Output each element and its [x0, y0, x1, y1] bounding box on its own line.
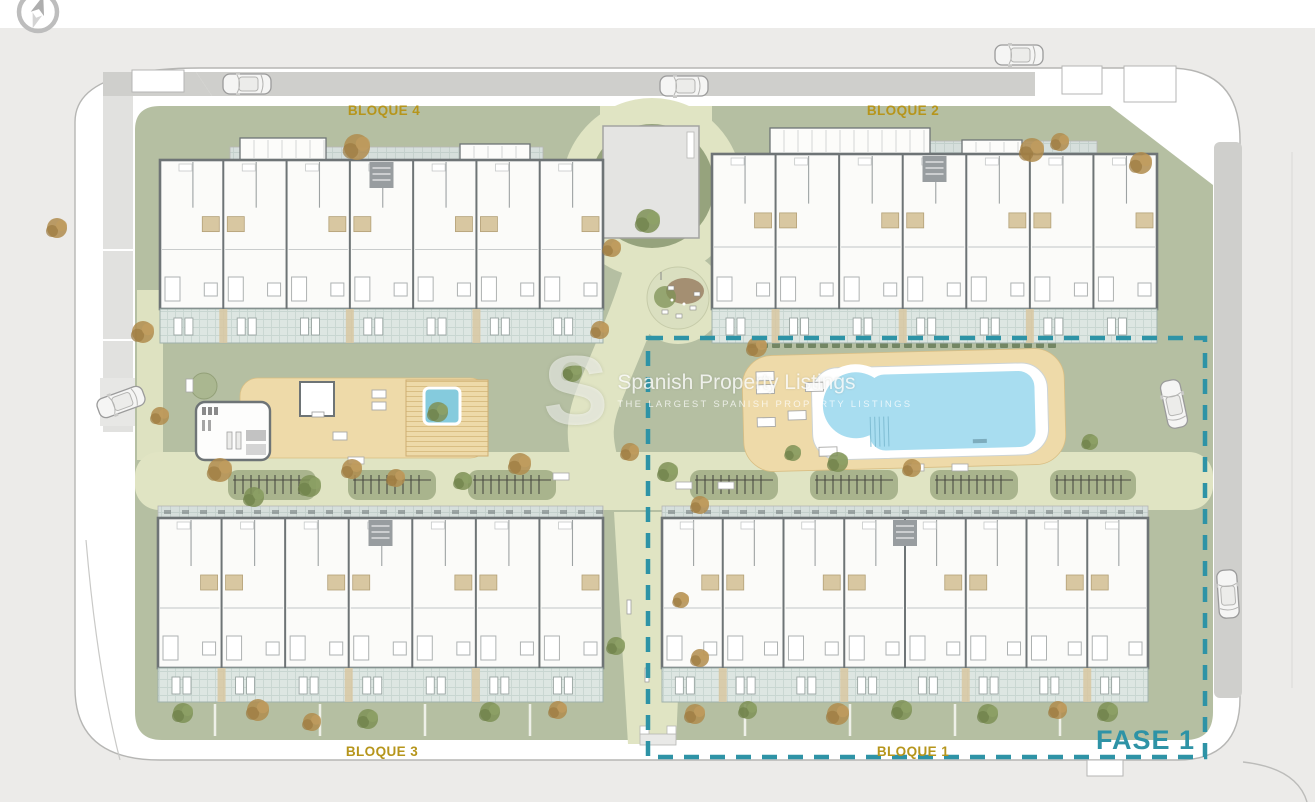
car	[995, 43, 1043, 67]
furniture	[971, 636, 986, 660]
furniture	[795, 158, 808, 165]
sun-lounger	[726, 318, 734, 335]
sun-lounger	[490, 318, 498, 335]
furniture	[789, 636, 804, 660]
gym-equipment	[208, 407, 212, 415]
furniture	[457, 642, 470, 655]
sun-lounger	[756, 384, 774, 393]
playground	[647, 267, 709, 329]
furniture	[802, 522, 815, 529]
furniture	[432, 164, 445, 171]
furniture	[584, 642, 597, 655]
sun-lounger	[1055, 318, 1063, 335]
furniture	[163, 636, 178, 660]
site-plan-page: BLOQUE 4 BLOQUE 2 BLOQUE 3 BLOQUE 1 FASE…	[0, 0, 1315, 802]
bathroom	[329, 217, 346, 232]
sun-lounger	[1101, 677, 1109, 694]
bathroom	[455, 217, 472, 232]
furniture	[757, 283, 770, 296]
compass-needle	[26, 0, 50, 30]
sun-lounger	[686, 677, 694, 694]
sun-lounger	[372, 402, 386, 410]
sun-lounger	[501, 677, 509, 694]
furniture	[884, 283, 897, 296]
entrance-steps	[640, 734, 676, 745]
play-equipment	[662, 310, 668, 314]
sun-lounger	[805, 382, 823, 391]
furniture	[241, 522, 254, 529]
furniture	[1011, 283, 1024, 296]
furniture	[418, 277, 433, 301]
furniture	[544, 636, 559, 660]
car	[660, 74, 708, 98]
car	[223, 72, 271, 96]
sun-lounger	[183, 677, 191, 694]
furniture	[495, 522, 508, 529]
sun-lounger	[554, 318, 562, 335]
furniture	[165, 277, 180, 301]
play-equipment	[694, 292, 700, 296]
furniture	[971, 277, 986, 301]
furniture	[849, 636, 864, 660]
sun-lounger	[929, 677, 937, 694]
bathroom	[755, 213, 772, 228]
furniture	[481, 636, 496, 660]
bathroom	[202, 217, 219, 232]
sun-lounger	[747, 677, 755, 694]
sun-lounger	[917, 318, 925, 335]
sun-lounger	[869, 677, 877, 694]
sun-lounger	[980, 318, 988, 335]
sun-lounger	[426, 677, 434, 694]
furniture	[331, 283, 344, 296]
label-bloque-2: BLOQUE 2	[833, 103, 973, 118]
gym-equipment	[202, 407, 206, 415]
furniture	[1092, 636, 1107, 660]
furniture	[667, 636, 682, 660]
apartment-building-bloque3	[158, 506, 603, 702]
furniture	[886, 642, 899, 655]
bench	[627, 600, 631, 614]
sun-lounger	[565, 318, 573, 335]
sun-lounger	[372, 390, 386, 398]
furniture	[394, 283, 407, 296]
stair-core	[370, 162, 394, 188]
sun-lounger	[757, 417, 775, 426]
sun-lounger	[801, 318, 809, 335]
furniture	[1008, 642, 1021, 655]
stair-core	[923, 156, 947, 182]
gym-equipment	[214, 407, 218, 415]
sun-lounger	[858, 677, 866, 694]
bathroom	[582, 575, 599, 590]
sun-lounger	[174, 318, 182, 335]
bathroom	[227, 217, 244, 232]
sun-lounger	[797, 677, 805, 694]
mound	[810, 470, 898, 500]
sun-lounger	[979, 677, 987, 694]
label-bloque-3: BLOQUE 3	[312, 744, 452, 759]
sun-lounger	[333, 432, 347, 440]
sun-lounger	[437, 677, 445, 694]
furniture	[355, 277, 370, 301]
furniture	[481, 277, 496, 301]
furniture	[717, 277, 732, 301]
sun-lounger	[790, 318, 798, 335]
gym-equipment	[227, 432, 232, 449]
bathroom	[702, 575, 719, 590]
swimming-pool	[868, 371, 1036, 451]
sun-lounger	[1040, 677, 1048, 694]
bathroom	[354, 217, 371, 232]
bathroom	[226, 575, 243, 590]
bathroom	[201, 575, 218, 590]
mound	[468, 470, 556, 500]
furniture	[306, 164, 319, 171]
furniture	[825, 642, 838, 655]
sun-lounger	[172, 677, 180, 694]
bathroom	[823, 575, 840, 590]
sun-lounger	[737, 318, 745, 335]
furniture	[1113, 158, 1126, 165]
furniture	[1129, 642, 1142, 655]
bathroom	[945, 575, 962, 590]
sun-lounger	[1044, 318, 1052, 335]
sun-lounger	[990, 677, 998, 694]
furniture	[292, 277, 307, 301]
bathroom	[455, 575, 472, 590]
sun-lounger	[788, 411, 806, 420]
furniture	[1068, 642, 1081, 655]
furniture	[858, 158, 871, 165]
road-top	[196, 72, 1035, 96]
bathroom	[848, 575, 865, 590]
gym-equipment	[246, 430, 266, 441]
sun-lounger	[300, 318, 308, 335]
furniture	[1098, 277, 1113, 301]
furniture	[1032, 636, 1047, 660]
furniture	[417, 636, 432, 660]
apartment-building-bloque4	[160, 138, 603, 343]
furniture	[1045, 522, 1058, 529]
sun-lounger	[438, 318, 446, 335]
sun-lounger	[247, 677, 255, 694]
furniture	[1049, 158, 1062, 165]
mound	[930, 470, 1018, 500]
sun-lounger	[736, 677, 744, 694]
sun-lounger	[364, 318, 372, 335]
bathroom	[480, 217, 497, 232]
compass-icon-svg	[11, 0, 65, 41]
parking-bay	[1087, 760, 1123, 776]
bathroom	[353, 575, 370, 590]
bathroom	[780, 213, 797, 228]
furniture	[765, 642, 778, 655]
furniture	[227, 636, 242, 660]
furniture	[1105, 522, 1118, 529]
furniture	[266, 642, 279, 655]
furniture	[680, 522, 693, 529]
furniture	[862, 522, 875, 529]
sun-lounger	[299, 677, 307, 694]
bathroom	[882, 213, 899, 228]
furniture	[844, 277, 859, 301]
bathroom	[1091, 575, 1108, 590]
furniture	[559, 164, 572, 171]
bathroom	[582, 217, 599, 232]
sun-lounger	[1107, 318, 1115, 335]
terrace-strip	[662, 668, 1148, 702]
furniture	[947, 642, 960, 655]
furniture	[431, 522, 444, 529]
site-plan-drawing	[0, 0, 1315, 802]
bathroom	[970, 575, 987, 590]
bathroom	[1066, 575, 1083, 590]
sun-lounger	[363, 677, 371, 694]
sun-lounger	[553, 677, 561, 694]
bathroom	[480, 575, 497, 590]
label-bloque-1: BLOQUE 1	[843, 744, 983, 759]
sun-lounger	[375, 318, 383, 335]
sun-lounger	[427, 318, 435, 335]
play-equipment	[668, 286, 674, 290]
furniture	[457, 283, 470, 296]
bathroom	[1034, 213, 1051, 228]
mound	[1050, 470, 1136, 500]
furniture	[923, 522, 936, 529]
sun-lounger	[952, 464, 968, 471]
furniture	[354, 636, 369, 660]
sun-lounger	[718, 482, 734, 489]
sun-lounger	[185, 318, 193, 335]
apartment-building-bloque2	[712, 128, 1157, 343]
furniture	[393, 642, 406, 655]
bathroom	[1009, 213, 1026, 228]
furniture	[908, 277, 923, 301]
furniture	[228, 277, 243, 301]
bathroom	[328, 575, 345, 590]
furniture	[559, 522, 572, 529]
furniture	[179, 164, 192, 171]
furniture	[728, 636, 743, 660]
parking-bay	[1124, 66, 1176, 102]
stair-core	[893, 520, 917, 546]
bathroom	[1136, 213, 1153, 228]
furniture	[820, 283, 833, 296]
furniture	[290, 636, 305, 660]
stair-core	[369, 520, 393, 546]
parking-bay	[1062, 66, 1102, 94]
gym-equipment	[208, 420, 211, 431]
label-fase-1: FASE 1	[1040, 725, 1195, 756]
furniture	[584, 283, 597, 296]
bathroom	[907, 213, 924, 228]
sun-lounger	[928, 318, 936, 335]
sun-lounger	[1051, 677, 1059, 694]
furniture	[947, 283, 960, 296]
furniture	[521, 283, 534, 296]
sun-lounger	[237, 318, 245, 335]
furniture	[781, 277, 796, 301]
bathroom	[727, 575, 744, 590]
sun-lounger	[853, 318, 861, 335]
apartment-building-bloque1	[662, 506, 1148, 702]
sun-lounger	[490, 677, 498, 694]
furniture	[984, 522, 997, 529]
sun-lounger	[564, 677, 572, 694]
sun-lounger	[310, 677, 318, 694]
furniture	[177, 522, 190, 529]
furniture	[910, 636, 925, 660]
sun-lounger	[864, 318, 872, 335]
sun-lounger	[808, 677, 816, 694]
furniture	[985, 158, 998, 165]
furniture	[1138, 283, 1151, 296]
sun-lounger	[248, 318, 256, 335]
furniture	[495, 164, 508, 171]
sun-lounger	[374, 677, 382, 694]
sun-lounger	[991, 318, 999, 335]
furniture	[741, 522, 754, 529]
furniture	[268, 283, 281, 296]
sun-lounger	[756, 371, 774, 380]
furniture	[1035, 277, 1050, 301]
furniture	[330, 642, 343, 655]
sun-lounger	[918, 677, 926, 694]
sun-lounger	[675, 677, 683, 694]
furniture	[731, 158, 744, 165]
parking-bay	[132, 70, 184, 92]
sun-lounger	[676, 482, 692, 489]
sun-lounger	[311, 318, 319, 335]
play-equipment	[676, 314, 682, 318]
play-equipment	[690, 306, 696, 310]
gym-equipment	[246, 444, 266, 455]
sun-lounger	[236, 677, 244, 694]
furniture	[242, 164, 255, 171]
sun-lounger	[501, 318, 509, 335]
sun-lounger	[1112, 677, 1120, 694]
sun-lounger	[1118, 318, 1126, 335]
furniture	[1074, 283, 1087, 296]
gym-equipment	[202, 420, 205, 431]
label-bloque-4: BLOQUE 4	[314, 103, 454, 118]
furniture	[204, 283, 217, 296]
furniture	[304, 522, 317, 529]
gym-equipment	[236, 432, 241, 449]
compass-icon	[11, 0, 65, 41]
pond	[191, 373, 217, 399]
furniture	[545, 277, 560, 301]
sun-lounger	[553, 473, 569, 480]
pool-house	[300, 382, 334, 416]
furniture	[520, 642, 533, 655]
furniture	[203, 642, 216, 655]
